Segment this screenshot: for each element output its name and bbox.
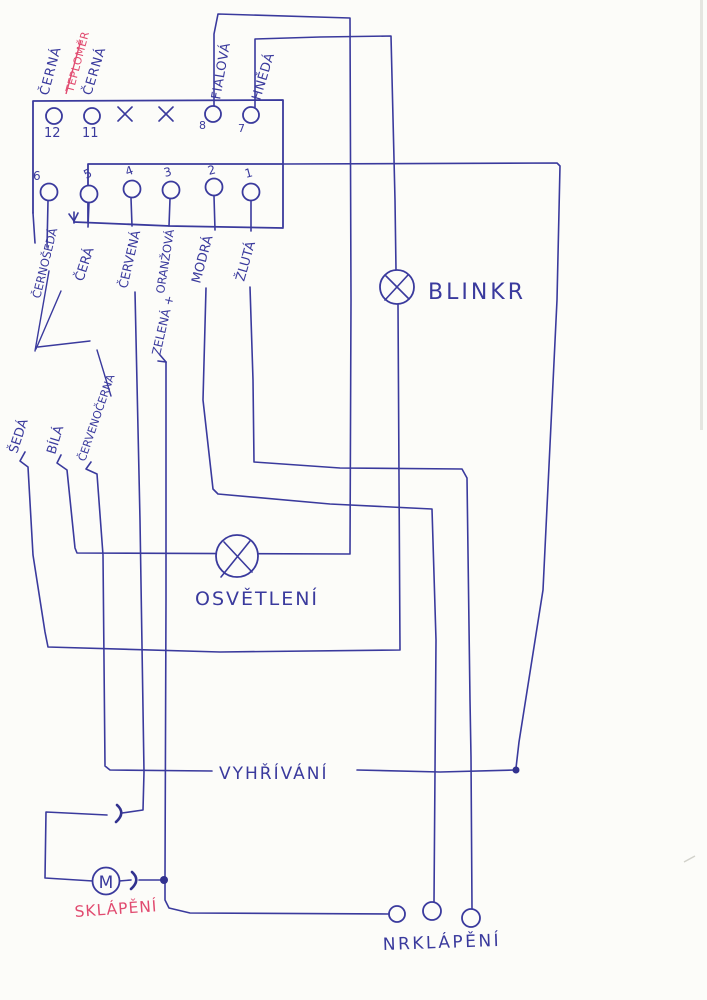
pin-x-right-icon — [159, 107, 173, 121]
pin-12 — [46, 108, 62, 124]
pin-number-8: 8 — [199, 119, 206, 132]
pin-5 — [81, 186, 98, 203]
label-fialova: FIALOVÁ — [208, 41, 234, 100]
pin-number-5: 5 — [81, 166, 94, 182]
label-osvetleni: OSVĚTLENÍ — [195, 587, 319, 610]
pin-number-3: 3 — [162, 164, 173, 180]
pin-number-12: 12 — [44, 126, 61, 141]
pin-number-6: 6 — [33, 169, 41, 183]
motor-letter: M — [99, 873, 114, 893]
wire-cervenocerna-vyhrivani — [86, 462, 212, 771]
pin-3 — [163, 182, 180, 199]
pin-11 — [84, 108, 100, 124]
diagram-canvas: 12 11 8 7 6 5 4 3 2 1 M ČERNÁ TEPLOMĚR — [0, 0, 707, 1000]
label-cera: ČERÁ — [72, 245, 98, 283]
label-cerna-1: ČERNÁ — [36, 45, 64, 97]
label-seda: ŠEDÁ — [6, 417, 32, 455]
terminal-middle — [423, 902, 441, 920]
vyhrivani-end-dot — [513, 767, 520, 774]
pin5-stub — [88, 202, 89, 227]
label-cernoseda: ČERNOŠEDÁ — [28, 226, 60, 300]
wire-hneda-blinkr — [255, 36, 396, 270]
pin2-stub — [214, 196, 215, 230]
label-modra: MODRÁ — [188, 234, 216, 285]
pin-4 — [124, 181, 141, 198]
zelena-arrowhead-2 — [158, 361, 166, 362]
pin-8 — [205, 106, 221, 122]
label-oranzova: ORANŽOVÁ — [152, 228, 177, 294]
wire-riser-to-connector — [283, 163, 560, 768]
label-nrklapeni: NRKLÁPĚNÍ — [382, 929, 501, 955]
pin-number-7: 7 — [238, 122, 245, 135]
fan-line-3 — [38, 341, 90, 347]
terminal-right — [462, 909, 480, 927]
pin-number-11: 11 — [82, 126, 99, 141]
pin-7 — [243, 107, 259, 123]
wire-motor-out — [119, 880, 131, 881]
label-cervenocerna: ČERVENOČERNÁ — [76, 372, 118, 463]
label-vyhrivani: VYHŘÍVÁNÍ — [219, 762, 329, 784]
plug-contact-icon — [116, 805, 121, 822]
plug-contact-icon-2 — [131, 872, 136, 889]
label-cervena: ČERVENÁ — [115, 228, 143, 289]
scan-smudge — [684, 856, 695, 862]
connector-block: 12 11 8 7 6 5 4 3 2 1 — [33, 100, 283, 247]
pin-2 — [206, 179, 223, 196]
pin4-stub — [131, 198, 132, 226]
label-blinkr: BLINKR — [428, 280, 526, 305]
junction-dot — [160, 876, 168, 884]
connector-foot-left — [33, 213, 35, 243]
pin-x-left-icon — [118, 107, 132, 121]
pin3-stub — [169, 199, 170, 226]
label-zluta: ŽLUTÁ — [232, 239, 259, 283]
pin-number-1: 1 — [243, 165, 254, 181]
label-sklapeni: SKLÁPĚNÍ — [74, 896, 158, 921]
pin-1 — [243, 184, 260, 201]
label-bila: BÍLÁ — [44, 423, 68, 456]
label-hneda: HNĚDÁ — [249, 51, 279, 102]
terminal-left — [389, 906, 405, 922]
pin-6 — [41, 184, 58, 201]
hand-drawn-wiring-diagram: 12 11 8 7 6 5 4 3 2 1 M ČERNÁ TEPLOMĚR — [0, 0, 707, 1000]
wire-vyhrivani-right — [357, 770, 515, 772]
scan-edge-shadow — [700, 0, 703, 430]
label-zelena-plus: ZELENÁ + — [148, 294, 176, 357]
wire-zelena-oranzova — [165, 362, 389, 914]
pin-number-4: 4 — [123, 163, 135, 179]
